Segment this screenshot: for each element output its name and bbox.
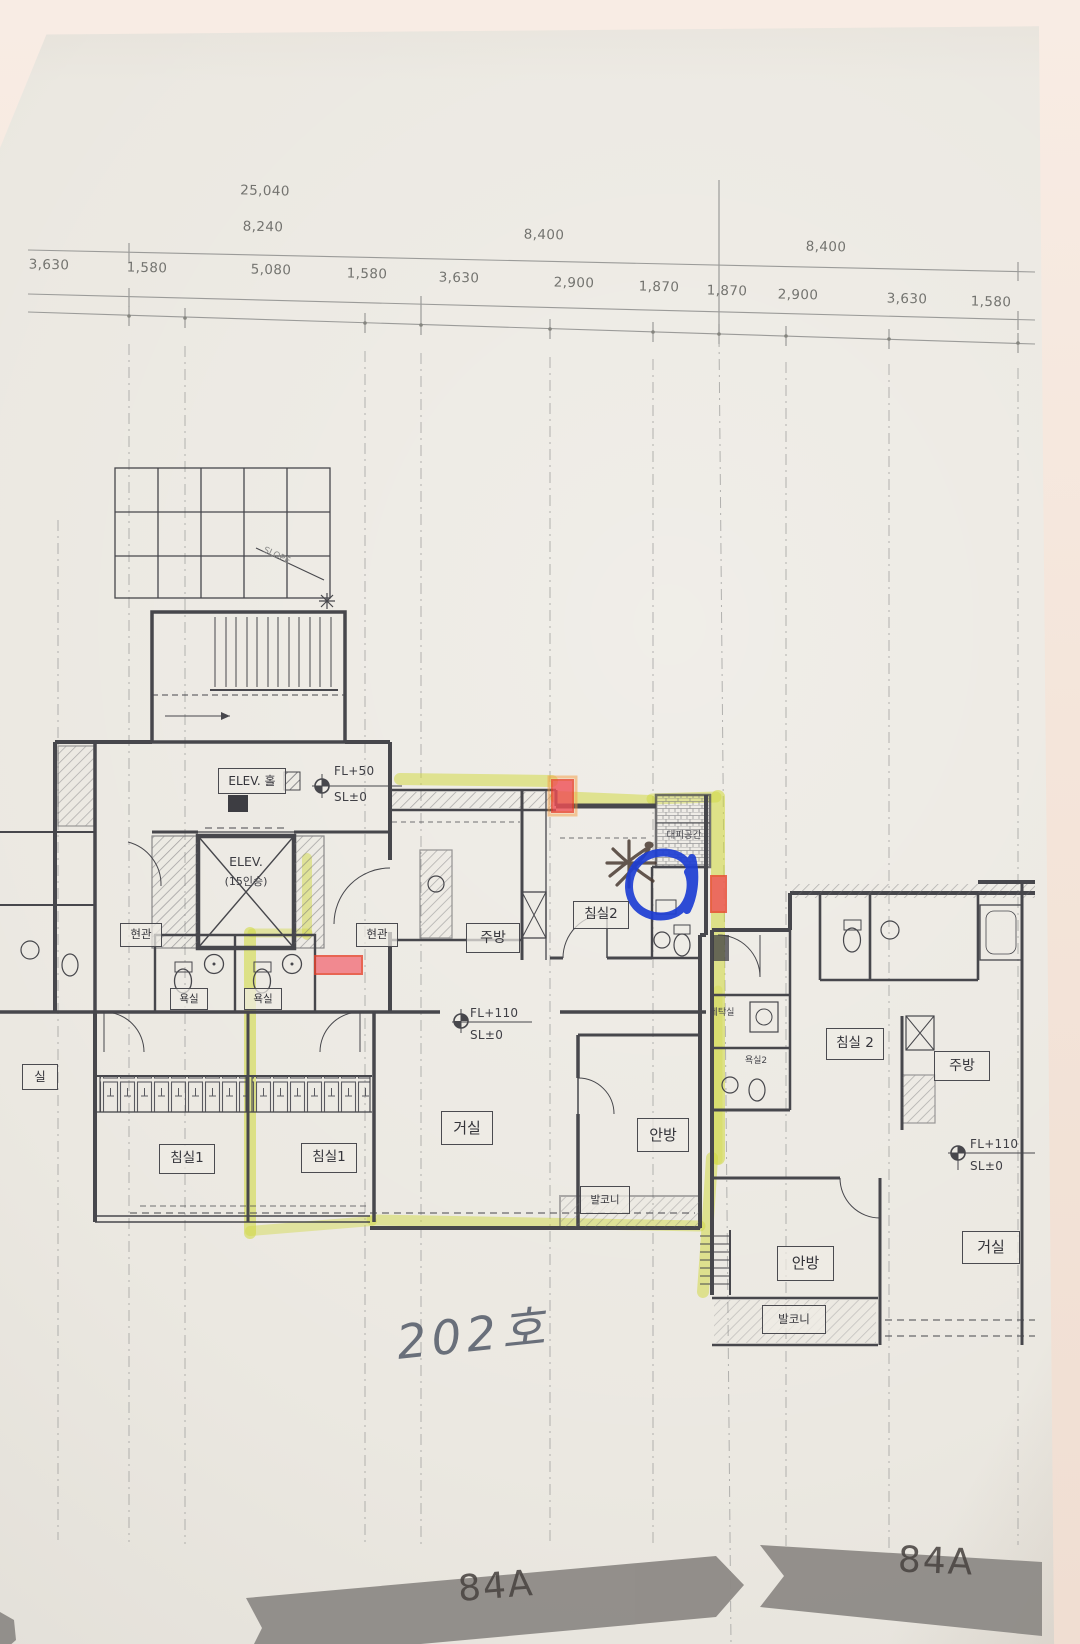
photo-of-floor-plan: { "dims": { "total": "25,040", "row2": [… (0, 0, 1080, 1644)
balcony-label: 발코니 (580, 1186, 630, 1214)
dim-seg: 3,630 (434, 269, 484, 286)
unit-sl-label: SL±0 (470, 1028, 503, 1042)
unit-fl-label: FL+110 (470, 1006, 518, 1020)
refuge-label: 대피공간 (658, 828, 710, 843)
dim-seg: 2,900 (549, 274, 599, 291)
hall-fl-label: FL+50 (334, 764, 374, 778)
banner-left-text: 84A (457, 1563, 536, 1610)
elev-hall-label: ELEV. 홀 (218, 768, 286, 794)
hall-sl-label: SL±0 (334, 790, 367, 804)
bedroom1-label: 침실1 (159, 1144, 215, 1174)
bedroom2-label: 침실2 (573, 901, 629, 929)
master-label: 안방 (777, 1246, 834, 1281)
unit-fl-label: FL+110 (970, 1137, 1018, 1151)
dim-seg: 1,580 (122, 259, 172, 276)
kitchen-label: 주방 (466, 923, 520, 953)
dim-seg: 3,630 (24, 256, 74, 273)
entry-label: 현관 (120, 923, 162, 947)
dim-seg: 5,080 (246, 261, 296, 278)
bath2-label: 욕실2 (736, 1054, 776, 1068)
dimension-lines (28, 180, 1035, 353)
dim-seg: 1,870 (702, 282, 752, 299)
bedroom1-label: 침실1 (301, 1143, 357, 1173)
dim-seg: 1,580 (966, 293, 1016, 310)
laundry-label: 세탁실 (700, 1006, 744, 1020)
dim-span: 8,400 (519, 226, 569, 243)
elev-capacity-label: (15인승) (200, 872, 292, 890)
dim-seg: 1,870 (634, 278, 684, 295)
walls (0, 468, 1035, 1345)
kitchen-label: 주방 (934, 1051, 990, 1081)
living-label: 거실 (962, 1231, 1020, 1264)
floor-plan-drawing (0, 0, 1080, 1644)
dim-seg: 1,580 (342, 265, 392, 282)
banner-right-text: 84A (897, 1539, 975, 1583)
bath-label: 욕실 (244, 988, 282, 1010)
dim-seg: 2,900 (773, 286, 823, 303)
bedroom2-label: 침실 2 (826, 1028, 884, 1060)
unit-sl-label: SL±0 (970, 1159, 1003, 1173)
entry-label: 현관 (356, 923, 398, 947)
living-label: 거실 (441, 1111, 493, 1145)
elev-label: ELEV. (200, 852, 292, 872)
banner-left-sliver (0, 1612, 16, 1644)
dim-span: 8,400 (801, 238, 851, 255)
balcony-label: 발코니 (762, 1305, 826, 1334)
bath-label: 욕실 (170, 988, 208, 1010)
dim-total: 25,040 (240, 182, 290, 199)
dim-span: 8,240 (238, 218, 288, 235)
edge-room-label: 실 (22, 1064, 58, 1090)
dim-seg: 3,630 (882, 290, 932, 307)
master-label: 안방 (637, 1118, 689, 1152)
